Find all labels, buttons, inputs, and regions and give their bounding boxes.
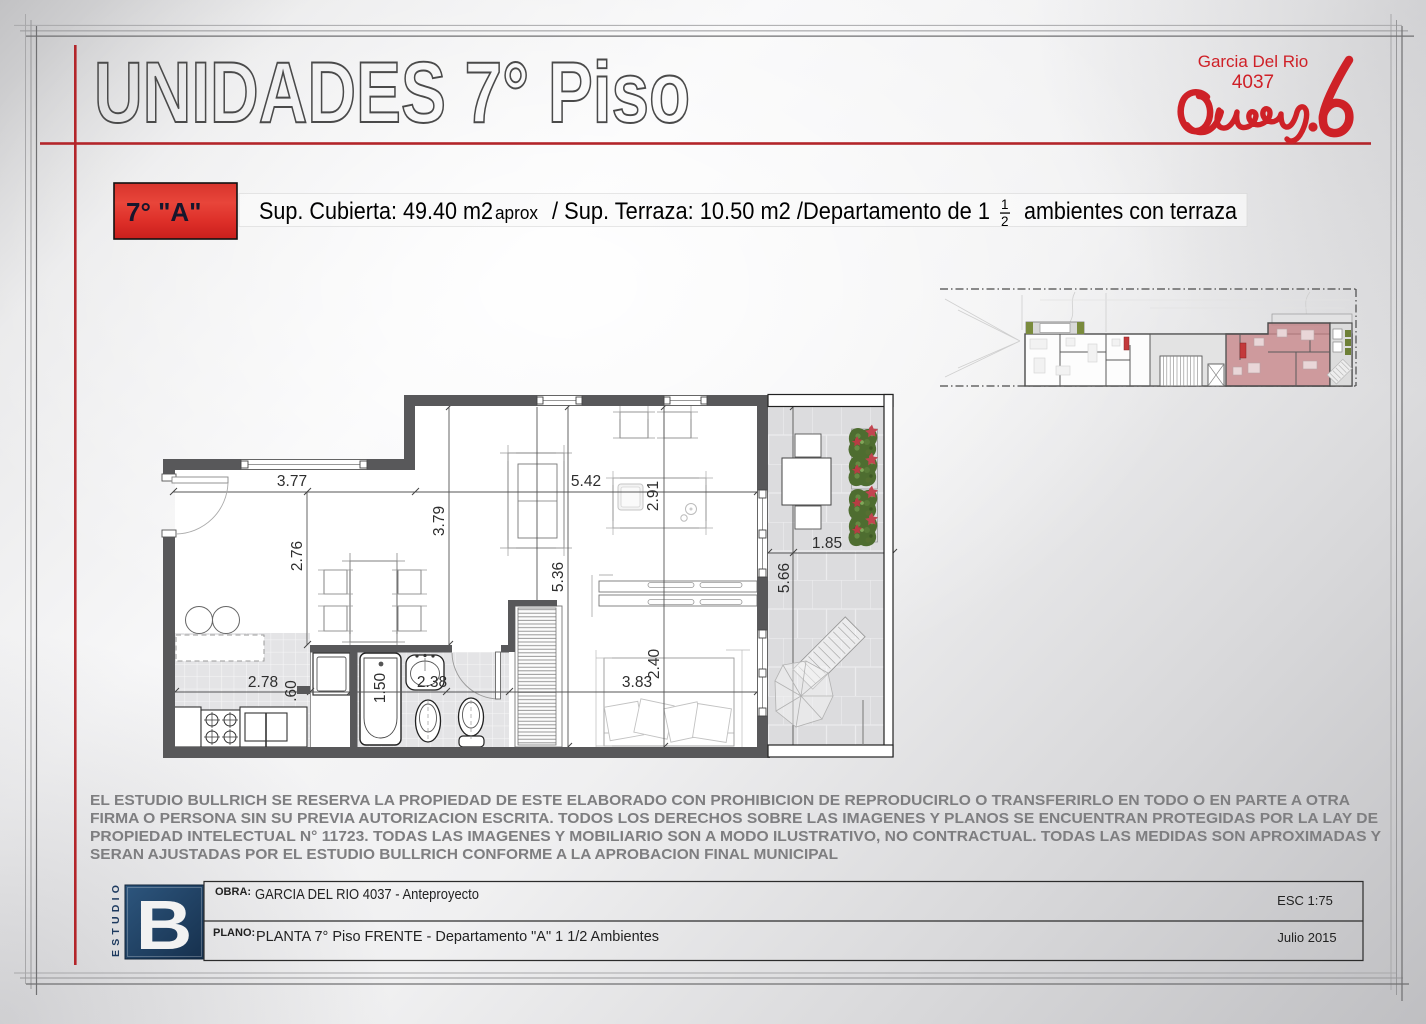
svg-text:PLANO:: PLANO: — [213, 927, 255, 939]
svg-text:ESC 1:75: ESC 1:75 — [1277, 893, 1333, 908]
svg-text:2.78: 2.78 — [248, 674, 278, 691]
svg-text:OBRA:: OBRA: — [215, 886, 251, 898]
svg-text:B: B — [136, 886, 193, 964]
svg-text:PROPIEDAD INTELECTUAL N° 11723: PROPIEDAD INTELECTUAL N° 11723. TODAS LA… — [90, 828, 1381, 845]
svg-text:2.76: 2.76 — [289, 541, 306, 571]
svg-text:aprox: aprox — [495, 202, 539, 223]
svg-text:2: 2 — [1001, 214, 1009, 229]
svg-text:PLANTA 7° Piso FRENTE - Depart: PLANTA 7° Piso FRENTE - Departamento "A"… — [256, 928, 659, 945]
svg-text:Sup. Cubierta: 49.40 m2: Sup. Cubierta: 49.40 m2 — [259, 198, 493, 225]
svg-text:ESTUDIO: ESTUDIO — [110, 881, 122, 957]
svg-text:EL ESTUDIO BULLRICH SE RESERVA: EL ESTUDIO BULLRICH SE RESERVA LA PROPIE… — [90, 792, 1350, 809]
svg-text:4037: 4037 — [1232, 72, 1274, 93]
svg-text:Julio 2015: Julio 2015 — [1277, 930, 1336, 945]
svg-text:5.66: 5.66 — [776, 563, 793, 593]
svg-text:2.91: 2.91 — [645, 481, 662, 511]
svg-text:2.40: 2.40 — [646, 649, 663, 680]
svg-text:5.42: 5.42 — [571, 473, 601, 490]
svg-text:2.38: 2.38 — [417, 674, 447, 691]
svg-text:Garcia Del Rio: Garcia Del Rio — [1198, 52, 1309, 71]
svg-text:1: 1 — [1001, 197, 1009, 212]
svg-text:3.77: 3.77 — [277, 473, 307, 490]
svg-text:GARCIA DEL RIO 4037 - Anteproy: GARCIA DEL RIO 4037 - Anteproyecto — [255, 886, 479, 903]
svg-text:SERAN AJUSTADAS POR EL ESTUDIO: SERAN AJUSTADAS POR EL ESTUDIO BULLRICH … — [90, 846, 838, 863]
svg-text:FIRMA O PERSONA SIN SU PREVIA: FIRMA O PERSONA SIN SU PREVIA AUTORIZACI… — [90, 810, 1378, 827]
svg-text:1.85: 1.85 — [812, 535, 842, 552]
svg-text:UNIDADES 7° Piso: UNIDADES 7° Piso — [94, 44, 690, 140]
svg-text:ambientes con terraza: ambientes con terraza — [1024, 198, 1237, 225]
svg-text:/ Sup. Terraza: 10.50 m2 /Depa: / Sup. Terraza: 10.50 m2 /Departamento d… — [552, 198, 990, 225]
svg-text:7° "A": 7° "A" — [126, 197, 202, 227]
svg-text:5.36: 5.36 — [550, 562, 567, 592]
svg-text:1.50: 1.50 — [372, 673, 389, 704]
svg-text:3.79: 3.79 — [431, 506, 448, 536]
